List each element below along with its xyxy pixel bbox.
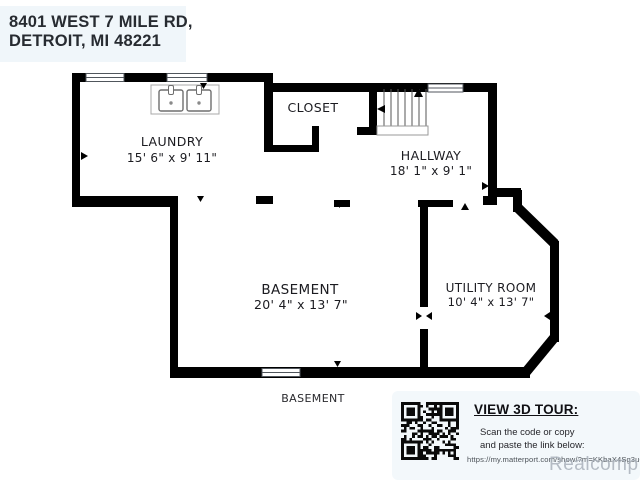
window-icon (428, 84, 463, 92)
door-arrow-icon (482, 182, 489, 190)
room-dims-hallway: 18' 1" x 9' 1" (390, 164, 472, 178)
staircase-icon (377, 88, 428, 135)
floorplan-page: 8401 WEST 7 MILE RD,DETROIT, MI 48221 (0, 0, 640, 480)
door-arrow-icon (426, 312, 432, 320)
door-arrow-icon (416, 312, 422, 320)
room-label-laundry: LAUNDRY (141, 134, 203, 149)
door-arrow-icon (197, 196, 204, 202)
tour-instructions-line2: and paste the link below: (480, 440, 585, 451)
window-icons (86, 74, 463, 377)
room-dims-utility: 10' 4" x 13' 7" (448, 295, 535, 309)
window-icon (86, 74, 124, 82)
address-line2: DETROIT, MI 48221 (9, 32, 161, 50)
door-arrow-icon (334, 361, 341, 367)
door-arrow-icons (81, 83, 550, 367)
room-label-closet: CLOSET (288, 100, 339, 115)
door-arrow-icon (544, 312, 550, 320)
tour-instructions-line1: Scan the code or copy (480, 427, 575, 438)
room-label-hallway: HALLWAY (401, 148, 461, 163)
door-arrow-icon (461, 203, 469, 210)
property-address: 8401 WEST 7 MILE RD,DETROIT, MI 48221 (9, 13, 193, 51)
room-dims-basement: 20' 4" x 13' 7" (254, 297, 348, 312)
qr-code-icon (401, 402, 459, 460)
door-arrow-icon (81, 152, 88, 160)
exterior-walls (72, 73, 559, 378)
sink-icon (151, 85, 219, 114)
room-label-utility: UTILITY ROOM (446, 281, 537, 295)
realcomp-watermark: Realcomp (549, 454, 639, 476)
window-icon (167, 74, 207, 82)
address-line1: 8401 WEST 7 MILE RD, (9, 13, 193, 31)
room-dims-laundry: 15' 6" x 9' 11" (127, 151, 217, 165)
floor-label: BASEMENT (281, 392, 345, 405)
room-label-basement: BASEMENT (261, 282, 339, 298)
tour-title: VIEW 3D TOUR: (474, 402, 578, 417)
window-icon (262, 369, 300, 377)
